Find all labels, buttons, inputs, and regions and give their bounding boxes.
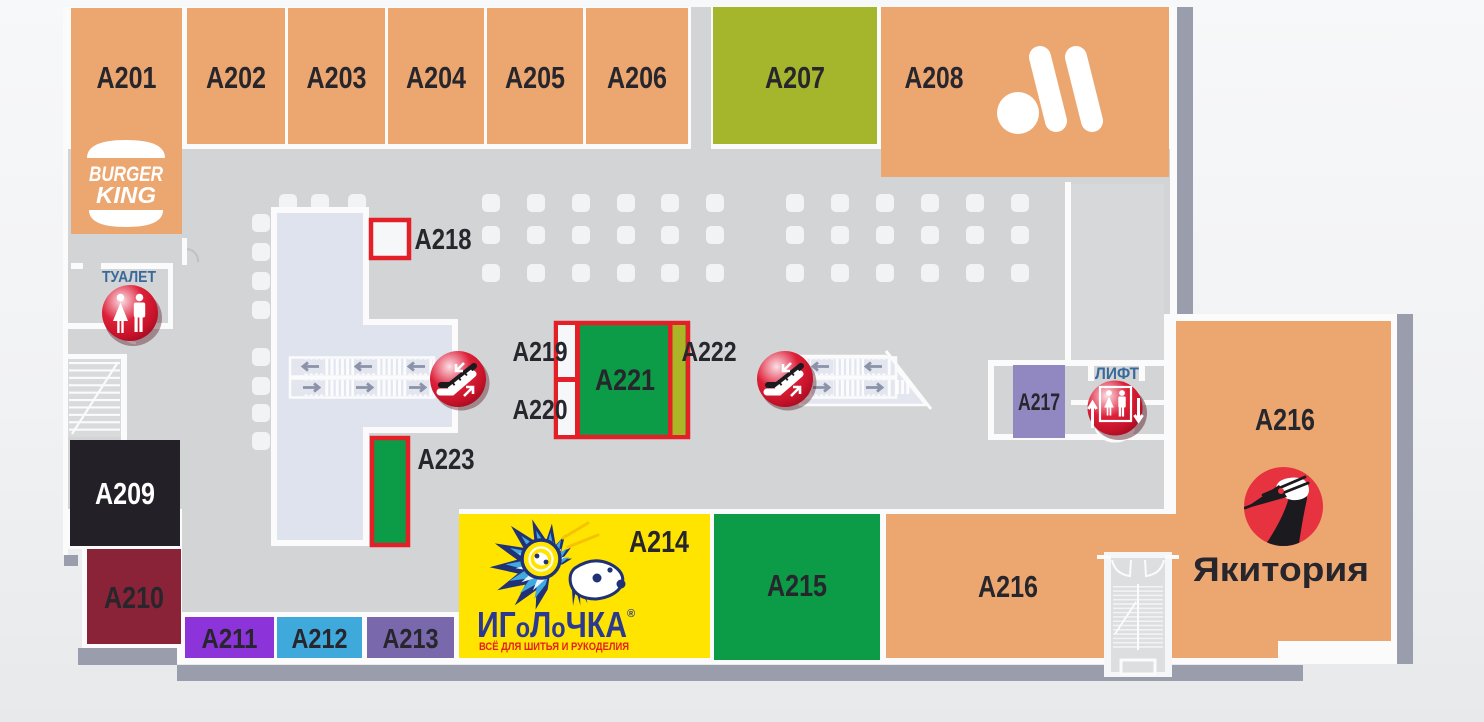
svg-text:Якитория: Якитория [1193,551,1369,589]
svg-text:A216: A216 [1255,402,1315,437]
svg-text:A217: A217 [1018,389,1060,416]
svg-text:A216: A216 [978,569,1038,604]
svg-text:A209: A209 [95,476,155,511]
svg-text:A220: A220 [513,394,568,425]
svg-text:A210: A210 [104,580,164,615]
svg-text:A222: A222 [682,336,737,367]
svg-text:ВСЁ ДЛЯ ШИТЬЯ И РУКОДЕЛИЯ: ВСЁ ДЛЯ ШИТЬЯ И РУКОДЕЛИЯ [479,640,629,653]
svg-text:A219: A219 [513,336,568,367]
svg-text:A223: A223 [418,444,475,476]
svg-text:A208: A208 [905,60,964,95]
svg-text:A206: A206 [607,60,667,95]
svg-text:ЛИФТ: ЛИФТ [1095,364,1140,383]
svg-text:A207: A207 [765,60,825,95]
svg-text:A205: A205 [505,60,565,95]
svg-text:A221: A221 [595,364,655,397]
svg-text:A214: A214 [629,524,690,559]
svg-text:A203: A203 [307,60,367,95]
svg-text:A211: A211 [202,623,258,654]
svg-text:A212: A212 [292,623,348,654]
svg-text:KING: KING [96,182,156,208]
svg-text:A218: A218 [415,224,472,256]
svg-text:A213: A213 [383,623,439,654]
svg-text:A201: A201 [97,60,157,95]
svg-text:A202: A202 [206,60,266,95]
svg-text:ТУАЛЕТ: ТУАЛЕТ [102,269,156,286]
svg-text:A204: A204 [406,60,467,95]
svg-text:A215: A215 [767,568,827,603]
svg-text:®: ® [627,608,635,620]
